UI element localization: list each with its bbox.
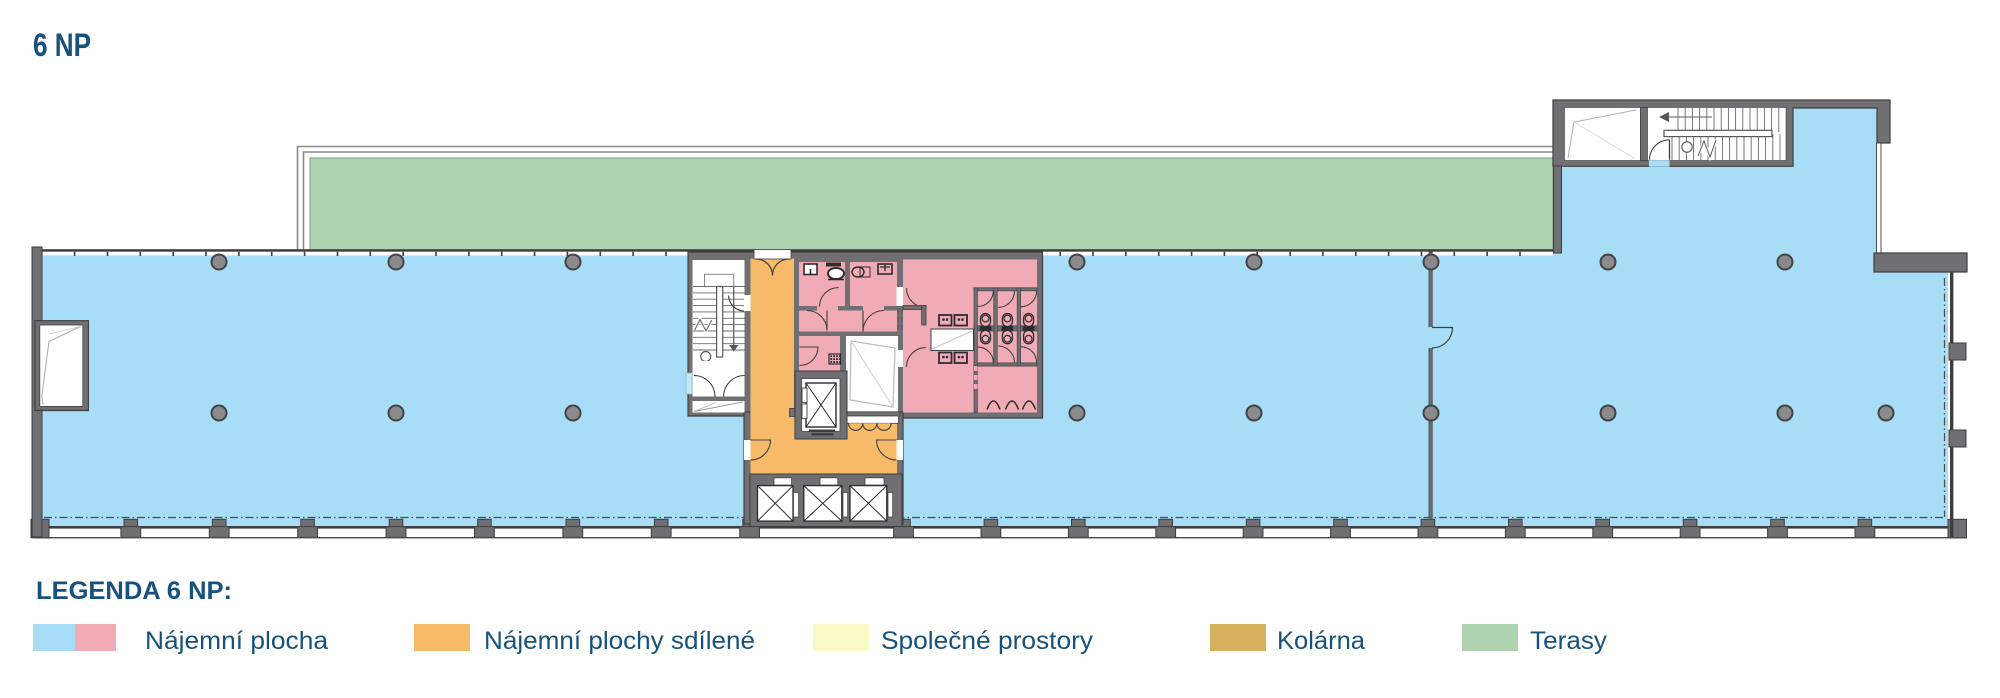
svg-text:Nájemní plocha: Nájemní plocha [145, 627, 328, 655]
svg-text:Společné prostory: Společné prostory [881, 627, 1094, 655]
svg-text:Nájemní plochy sdílené: Nájemní plochy sdílené [484, 627, 755, 655]
svg-text:LEGENDA 6 NP:: LEGENDA 6 NP: [36, 577, 232, 605]
svg-text:Kolárna: Kolárna [1277, 627, 1365, 655]
svg-text:Terasy: Terasy [1530, 627, 1608, 655]
svg-text:6 NP: 6 NP [33, 27, 91, 63]
